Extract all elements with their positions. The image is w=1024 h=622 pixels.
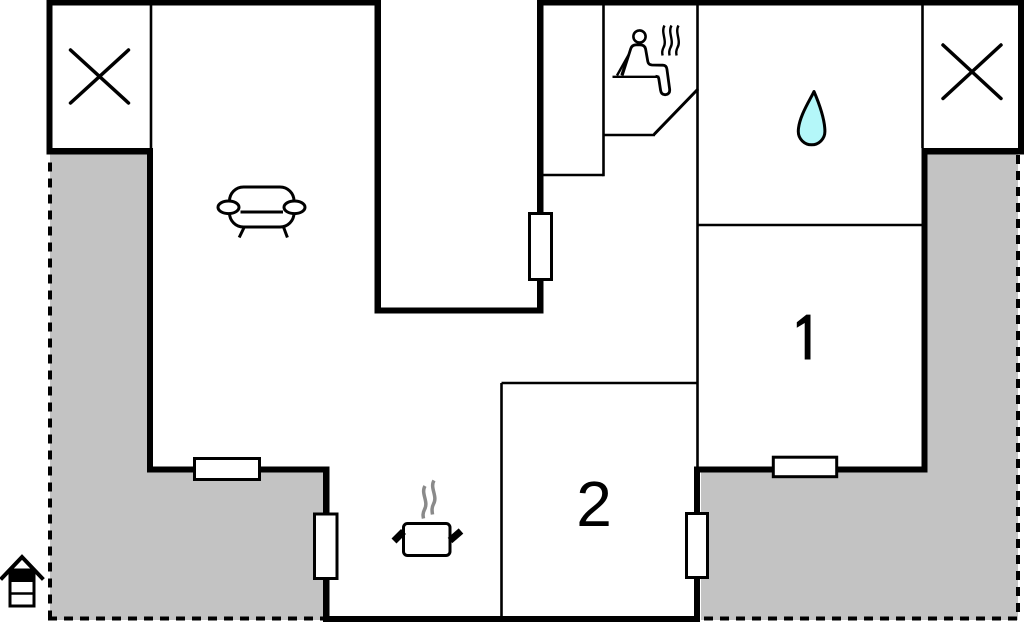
svg-text:2: 2 [576,468,612,540]
